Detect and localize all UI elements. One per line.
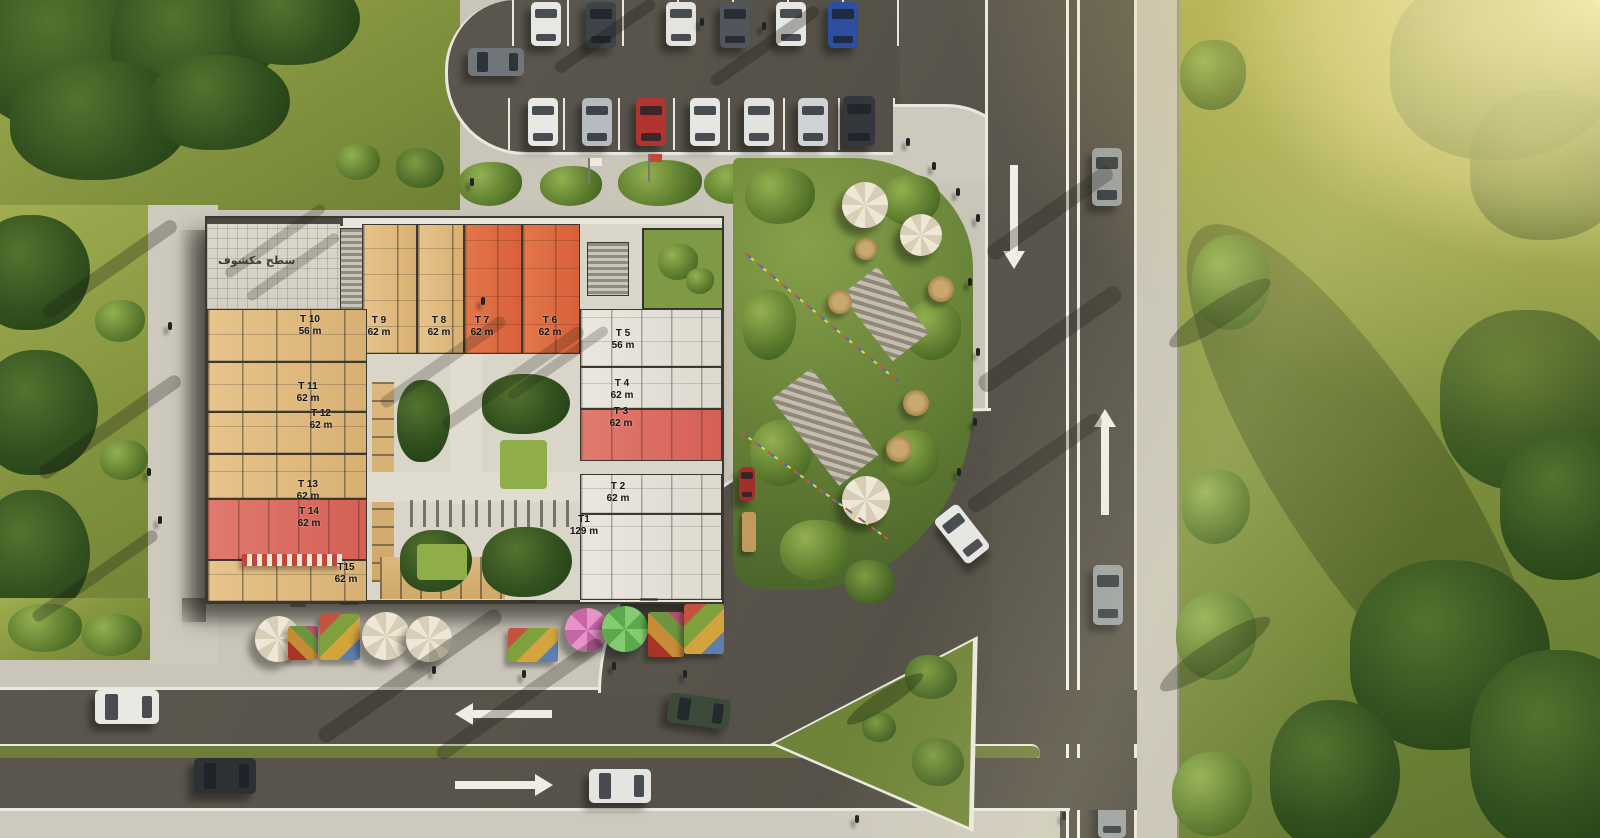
- building-shadow: [178, 230, 206, 622]
- unit-label-t14[interactable]: T 14 62 m: [286, 506, 332, 530]
- unit-area: 62 m: [416, 327, 462, 339]
- unit-id: T 6: [527, 315, 573, 327]
- bench: [742, 512, 756, 552]
- unit-label-t4[interactable]: T 4 62 m: [599, 378, 645, 402]
- unit-area: 56 m: [287, 326, 333, 338]
- garden-table: [855, 238, 877, 260]
- unit-area: 62 m: [595, 493, 641, 505]
- palm-tree: [396, 148, 444, 188]
- unit-area: 62 m: [599, 390, 645, 402]
- person: [470, 178, 474, 186]
- unit-id: T 8: [416, 315, 462, 327]
- green-roof-garden: [642, 228, 724, 310]
- unit-label-t5[interactable]: T 5 56 m: [600, 328, 646, 352]
- person: [683, 670, 687, 678]
- car: [744, 98, 774, 146]
- bush: [618, 160, 702, 206]
- unit-id: T 14: [286, 506, 332, 518]
- unit-id: T 5: [600, 328, 646, 340]
- car: [690, 98, 720, 146]
- stairwell: [587, 242, 629, 296]
- unit-label-t3[interactable]: T 3 62 m: [598, 406, 644, 430]
- unit-label-t8[interactable]: T 8 62 m: [416, 315, 462, 339]
- unit-label-t13[interactable]: T 13 62 m: [285, 479, 331, 503]
- unit-id: T 10: [287, 314, 333, 326]
- car: [720, 2, 750, 48]
- person: [906, 138, 910, 146]
- car: [843, 96, 875, 146]
- unit-label-t6[interactable]: T 6 62 m: [527, 315, 573, 339]
- shop-sign: [340, 602, 358, 605]
- umbrella: [842, 476, 890, 524]
- tree: [1470, 90, 1600, 240]
- shop-sign: [290, 604, 306, 607]
- garden-table: [903, 390, 929, 416]
- arrow-down-icon: [1006, 165, 1022, 275]
- umbrella: [900, 214, 942, 256]
- car: [828, 2, 858, 48]
- unit-area: 62 m: [285, 491, 331, 503]
- unit-area: 62 m: [285, 393, 331, 405]
- unit-label-t12[interactable]: T 12 62 m: [298, 408, 344, 432]
- market-stall: [288, 626, 318, 660]
- road-curb: [985, 0, 988, 424]
- unit-area: 129 m: [561, 526, 607, 538]
- car: [528, 98, 558, 146]
- tree: [482, 527, 572, 597]
- unit-id: T 3: [598, 406, 644, 418]
- person: [1062, 812, 1066, 820]
- person: [976, 214, 980, 222]
- umbrella: [602, 606, 648, 652]
- person: [957, 468, 961, 476]
- car: [468, 48, 524, 76]
- corridor: [580, 461, 722, 474]
- unit-area: 56 m: [600, 340, 646, 352]
- bush: [458, 162, 522, 206]
- car: [194, 758, 256, 794]
- bush: [540, 166, 602, 206]
- shop-sign: [640, 598, 658, 601]
- unit-label-t9[interactable]: T 9 62 m: [356, 315, 402, 339]
- sidewalk-bottom: [0, 811, 1060, 838]
- unit-area: 62 m: [286, 518, 332, 530]
- unit-id: T 2: [595, 481, 641, 493]
- sidewalk-right: [1137, 0, 1179, 838]
- unit-id: T 4: [599, 378, 645, 390]
- palm-tree: [912, 738, 964, 786]
- person: [158, 516, 162, 524]
- tree: [1500, 430, 1600, 580]
- unit-area: 62 m: [598, 418, 644, 430]
- umbrella: [362, 612, 410, 660]
- unit-area: 62 m: [323, 574, 369, 586]
- person: [612, 662, 616, 670]
- unit-label-t2[interactable]: T 2 62 m: [595, 481, 641, 505]
- person: [855, 815, 859, 823]
- person: [968, 278, 972, 286]
- market-stall: [648, 612, 684, 657]
- unit-id: T 11: [285, 381, 331, 393]
- person: [481, 297, 485, 305]
- unit-id: T1: [561, 514, 607, 526]
- lawn-patch: [417, 544, 467, 580]
- market-stall: [684, 604, 724, 654]
- person: [976, 348, 980, 356]
- car: [95, 690, 159, 724]
- car: [589, 769, 651, 803]
- unit-id: T 7: [459, 315, 505, 327]
- garden-table: [886, 436, 912, 462]
- unit-area: 62 m: [298, 420, 344, 432]
- car: [798, 98, 828, 146]
- flag: [590, 158, 602, 166]
- car: [582, 98, 612, 146]
- roof-terrace-label: سطح مكشوف: [218, 254, 295, 267]
- market-stall: [508, 628, 558, 662]
- unit-label-t1[interactable]: T1 129 m: [561, 514, 607, 538]
- person: [932, 162, 936, 170]
- person: [700, 18, 704, 26]
- unit-label-t10[interactable]: T 10 56 m: [287, 314, 333, 338]
- site-plan-render: T1 129 m T 2 62 m T 3 62 m T 4 62 m T 5 …: [0, 0, 1600, 838]
- shop-sign: [520, 600, 536, 603]
- bush: [686, 268, 714, 294]
- market-stall: [320, 614, 360, 660]
- unit-area: 62 m: [356, 327, 402, 339]
- pergola: [410, 500, 570, 527]
- unit-id: T 9: [356, 315, 402, 327]
- person: [956, 188, 960, 196]
- person: [973, 418, 977, 426]
- unit-area: 62 m: [459, 327, 505, 339]
- unit-label-t7[interactable]: T 7 62 m: [459, 315, 505, 339]
- car: [666, 2, 696, 46]
- person: [522, 670, 526, 678]
- person: [762, 22, 766, 30]
- palm-tree: [845, 560, 895, 604]
- garden-table: [828, 290, 852, 314]
- unit-area: 62 m: [527, 327, 573, 339]
- unit-id: T15: [323, 562, 369, 574]
- person: [147, 468, 151, 476]
- car: [1093, 565, 1123, 625]
- flag: [650, 154, 662, 162]
- unit-id: T 12: [298, 408, 344, 420]
- lawn-patch: [500, 440, 547, 489]
- car: [636, 98, 666, 146]
- person: [168, 322, 172, 330]
- garden-table: [928, 276, 954, 302]
- car: [739, 467, 755, 501]
- courtyard-path: [367, 472, 580, 502]
- unit-id: T 13: [285, 479, 331, 491]
- unit-label-t15[interactable]: T15 62 m: [323, 562, 369, 586]
- umbrella: [842, 182, 888, 228]
- arrow-right-icon: [452, 774, 552, 796]
- car: [531, 2, 561, 46]
- unit-label-t11[interactable]: T 11 62 m: [285, 381, 331, 405]
- tree: [1270, 700, 1400, 838]
